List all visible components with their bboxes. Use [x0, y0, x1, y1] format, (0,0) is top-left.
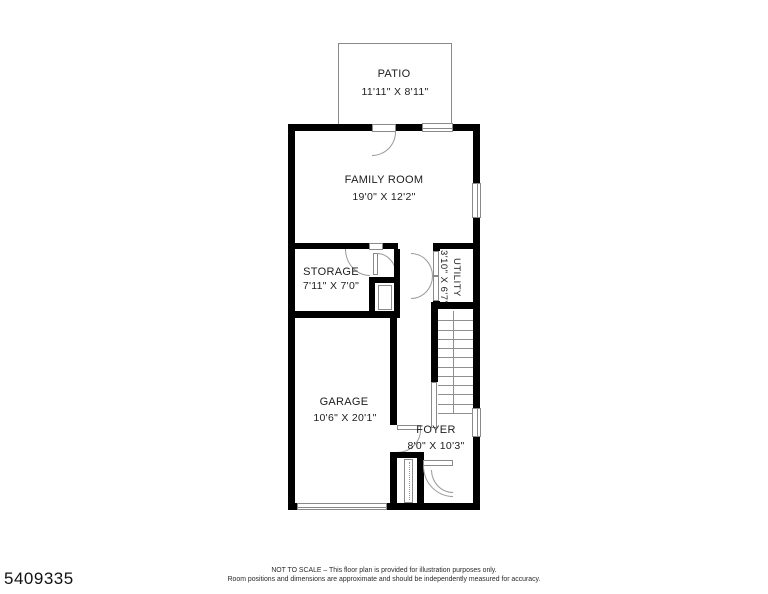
stairs: [438, 311, 473, 413]
disclaimer-line-2: Room positions and dimensions are approx…: [134, 575, 634, 584]
storage-door-leaf: [369, 243, 383, 250]
stairs-center-line: [453, 311, 454, 413]
garage-door: [297, 503, 387, 510]
window-top: [422, 123, 453, 132]
stair-tread: [438, 357, 473, 358]
window-family-room: [472, 183, 481, 218]
utility-door-arc-bottom: [411, 276, 433, 299]
window-foyer: [472, 408, 481, 437]
room-dims-family-room: 19'0" X 12'2": [352, 191, 415, 203]
patio-door-arc: [372, 132, 396, 156]
room-dims-patio: 11'11" X 8'11": [361, 86, 428, 98]
wall-garage-top: [288, 311, 400, 318]
stairs-railing: [431, 382, 437, 428]
stair-tread: [438, 348, 473, 349]
room-label-utility-group: UTILITY 3'10" X 6'7": [437, 246, 463, 308]
stair-tread: [438, 394, 473, 395]
room-dims-garage: 10'6" X 20'1": [313, 412, 376, 424]
wall-closet-left: [390, 452, 397, 510]
wall-stairs-left: [431, 309, 438, 382]
patio-door-leaf: [372, 124, 396, 132]
disclaimer: NOT TO SCALE – This floor plan is provid…: [134, 566, 634, 584]
wall-exterior-top-left: [288, 124, 372, 131]
disclaimer-line-1: NOT TO SCALE – This floor plan is provid…: [134, 566, 634, 575]
wall-vestibule-left: [369, 283, 375, 311]
vestibule-unit: [378, 285, 392, 310]
room-label-utility: UTILITY: [450, 246, 463, 308]
stair-tread: [438, 367, 473, 368]
stair-tread: [438, 413, 473, 414]
stair-tread: [438, 330, 473, 331]
floor-plan: PATIO 11'11" X 8'11" FAMILY ROOM 19'0" X…: [0, 0, 768, 594]
stair-tread: [438, 404, 473, 405]
utility-door-arc-top: [411, 253, 433, 276]
listing-id: 5409335: [4, 569, 74, 589]
stair-tread: [438, 339, 473, 340]
room-label-family-room: FAMILY ROOM: [345, 174, 424, 186]
room-label-patio: PATIO: [378, 68, 411, 80]
wall-exterior-right: [473, 124, 480, 510]
stair-tread: [438, 385, 473, 386]
wall-garage-right: [390, 318, 397, 425]
stair-tread: [438, 376, 473, 377]
room-dims-storage: 7'11" X 7'0": [303, 280, 359, 292]
room-label-foyer: FOYER: [416, 424, 455, 436]
wall-exterior-top-mid: [396, 124, 422, 131]
room-label-storage: STORAGE: [303, 266, 359, 278]
room-label-garage: GARAGE: [320, 396, 369, 408]
room-dims-foyer: 8'0" X 10'3": [407, 440, 464, 452]
room-dims-utility: 3'10" X 6'7": [437, 246, 450, 308]
stair-tread: [438, 320, 473, 321]
patio-outline: [338, 43, 452, 126]
closet-door: [404, 459, 413, 503]
wall-closet-top: [397, 452, 417, 458]
